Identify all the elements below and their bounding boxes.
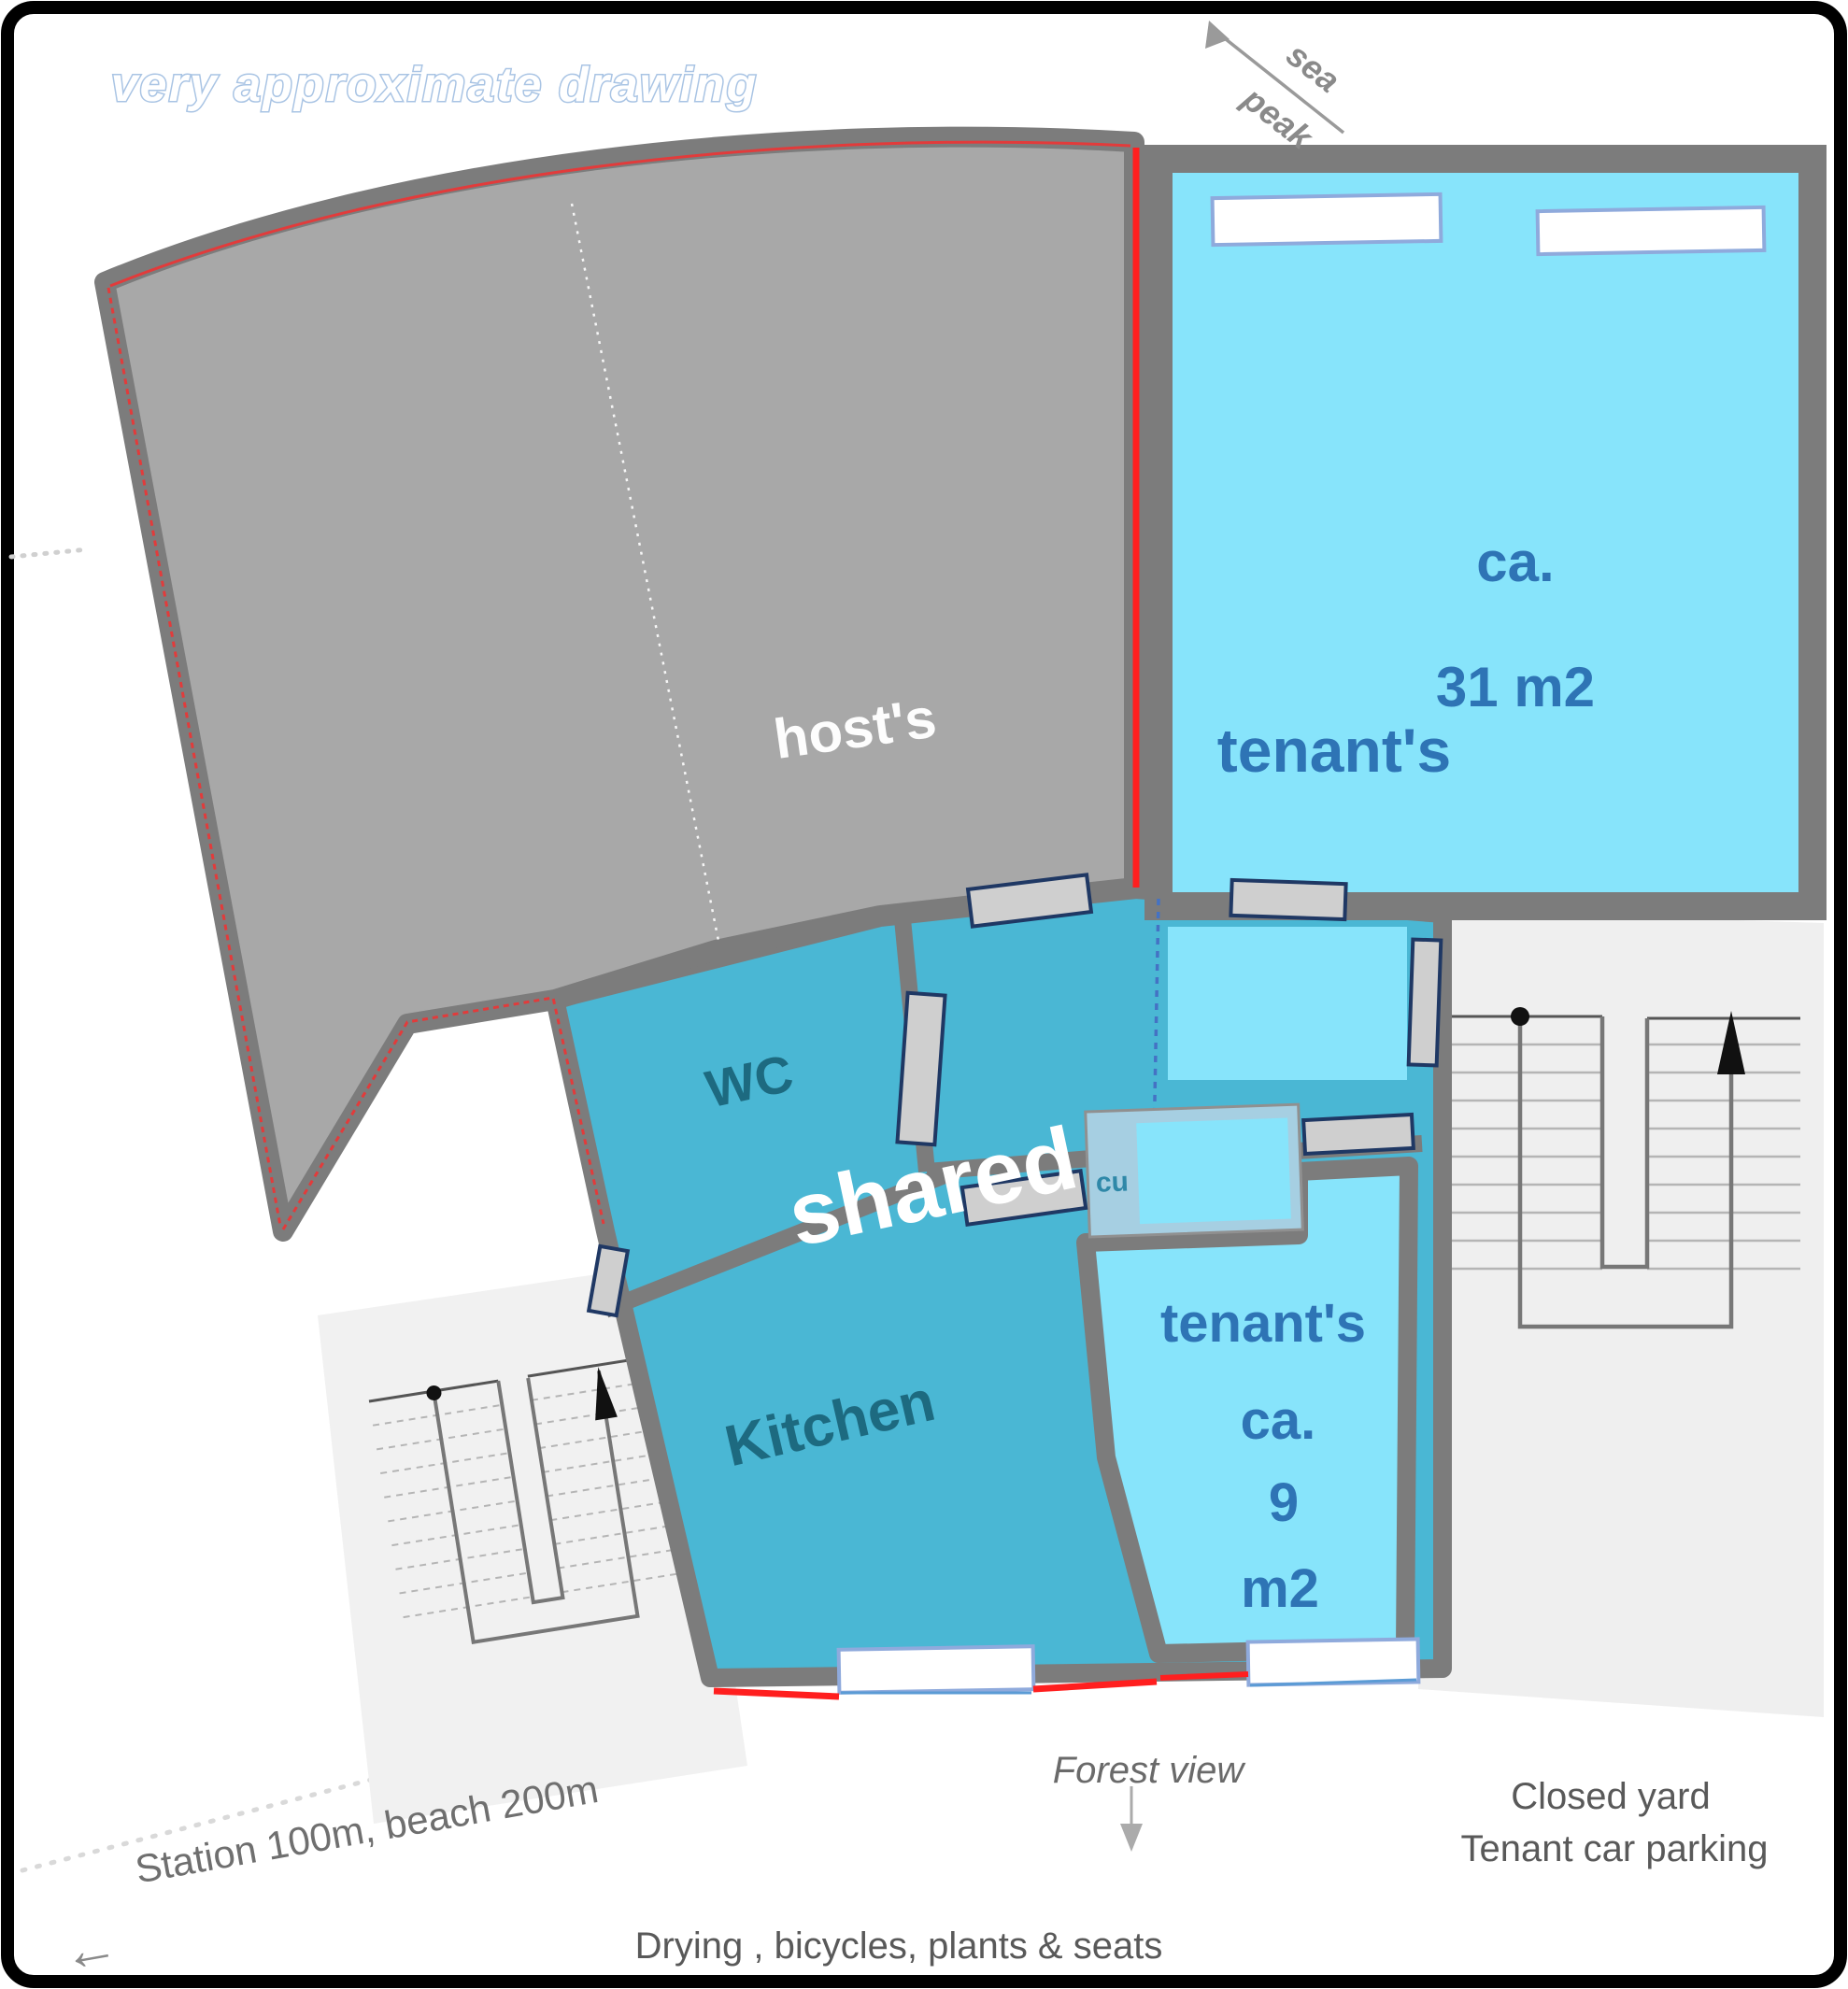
forest-view-label: Forest view [1053, 1750, 1247, 1791]
tenant-large-area-prefix: ca. [1476, 531, 1554, 593]
tenant-small-area-value: 9 [1269, 1472, 1299, 1533]
tenant-large-area: 31 m2 [1436, 656, 1595, 718]
stair-start-dot [1511, 1007, 1529, 1026]
window-top-2 [1538, 207, 1765, 254]
window-top-1 [1213, 194, 1442, 245]
yard-door [1409, 940, 1442, 1066]
hall-highlight [1168, 927, 1407, 1080]
tenant-small-door [1303, 1115, 1414, 1154]
wc-hall-door [897, 993, 945, 1144]
tenant-large-door [1230, 880, 1345, 919]
station-left-arrow-icon: ← [57, 1913, 123, 1984]
tenant-parking-label: Tenant car parking [1460, 1828, 1768, 1869]
tenant-small-area-unit: m2 [1241, 1558, 1319, 1619]
window-kitchen [839, 1646, 1034, 1693]
cupboard-label: cu [1095, 1167, 1129, 1199]
window-tenant-small [1248, 1639, 1419, 1684]
drawing-title: very approximate drawing [111, 58, 758, 112]
tenant-small-area-prefix: ca. [1241, 1390, 1316, 1451]
right-yard-area [1418, 911, 1824, 1717]
floor-plan-drawing: cu sea peak very approximate [0, 0, 1848, 1989]
tenant-large-label: tenant's [1217, 716, 1451, 785]
tenant-small-label: tenant's [1160, 1293, 1366, 1354]
floor-plan-page: cu sea peak very approximate [0, 0, 1848, 1989]
cupboard: cu [1086, 1104, 1303, 1237]
yard-uses-label: Drying , bicycles, plants & seats [635, 1925, 1163, 1967]
closed-yard-label: Closed yard [1511, 1776, 1710, 1817]
